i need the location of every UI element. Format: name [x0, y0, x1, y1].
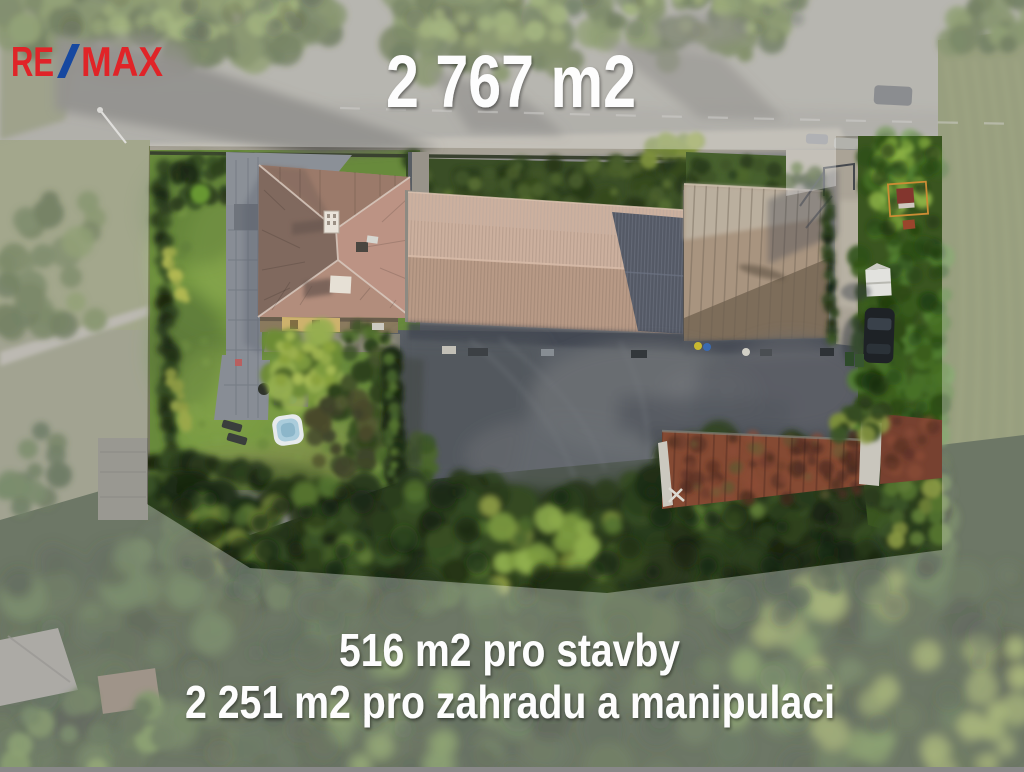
svg-text:MAX: MAX: [81, 38, 163, 85]
svg-text:2 251 m2 pro zahradu a manipul: 2 251 m2 pro zahradu a manipulaci: [185, 676, 835, 728]
svg-text:2 767 m2: 2 767 m2: [386, 40, 636, 123]
svg-text:516 m2 pro stavby: 516 m2 pro stavby: [339, 624, 680, 676]
svg-text:RE: RE: [11, 38, 54, 85]
